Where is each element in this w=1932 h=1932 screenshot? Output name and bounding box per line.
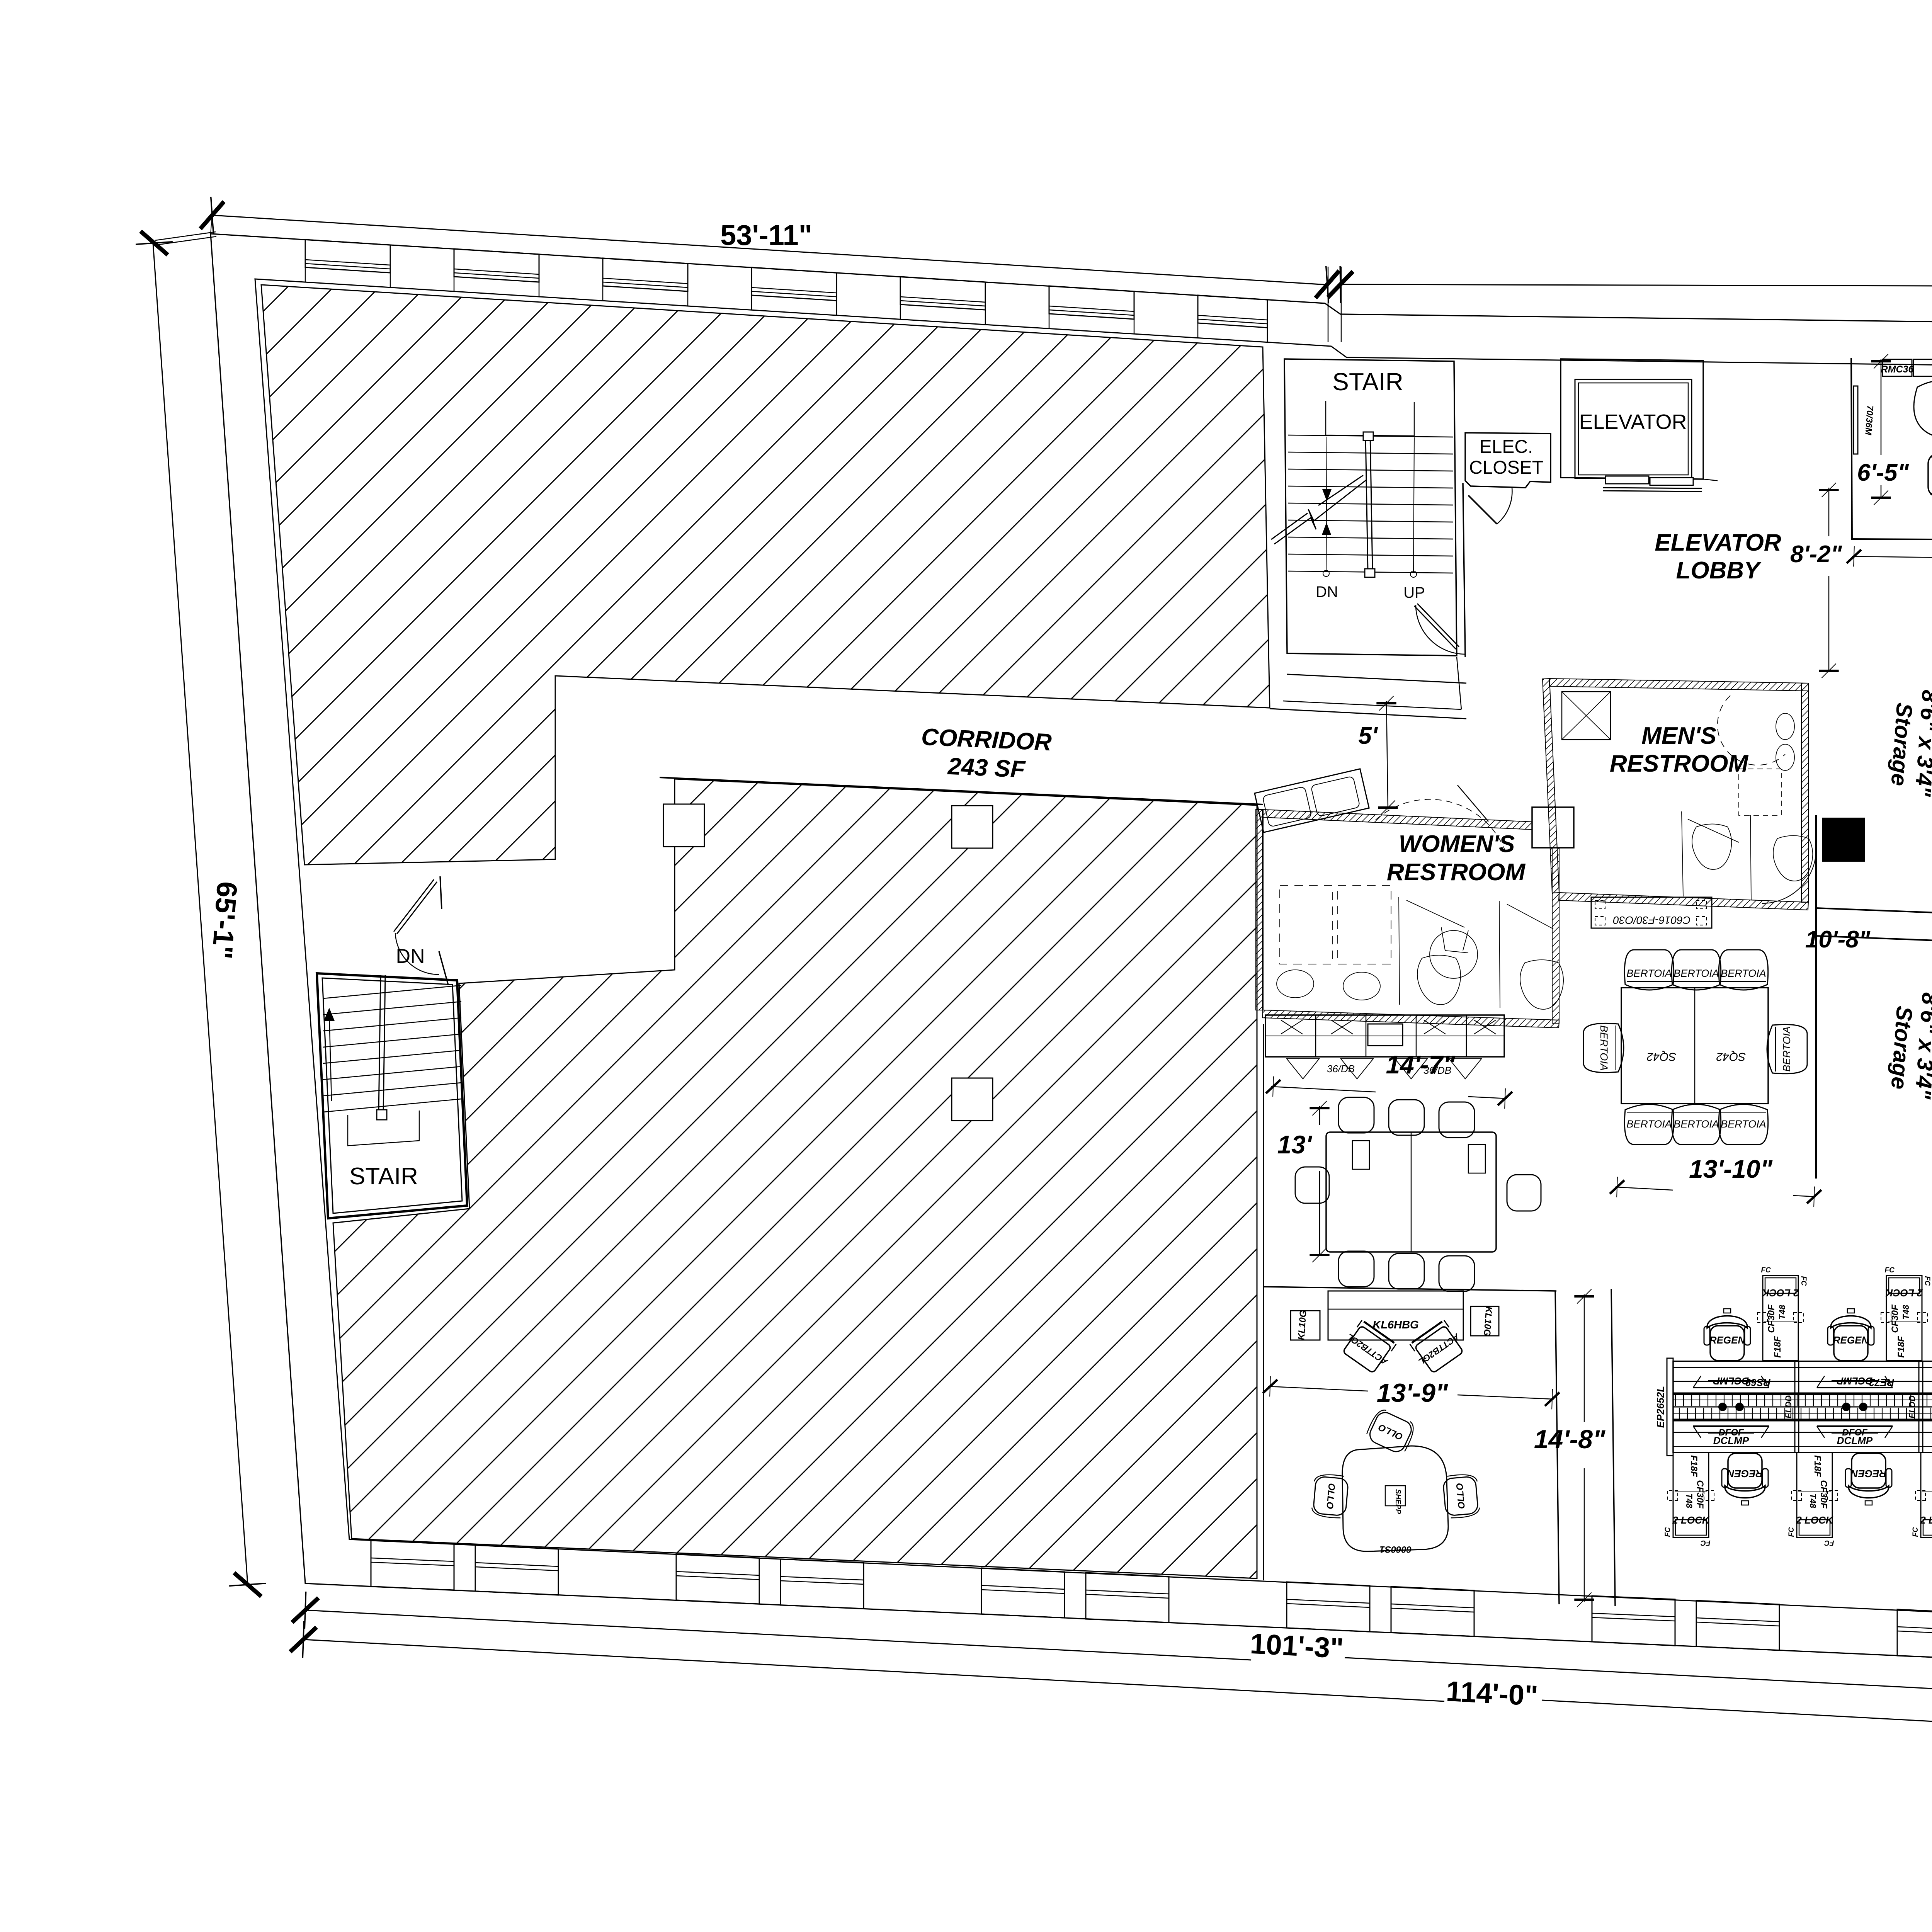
svg-text:RMC36: RMC36	[1881, 364, 1914, 375]
svg-text:EP2652L: EP2652L	[1655, 1386, 1666, 1428]
svg-text:RESTROOM: RESTROOM	[1387, 859, 1526, 886]
svg-text:14'-8": 14'-8"	[1534, 1425, 1605, 1454]
svg-text:F18F: F18F	[1689, 1455, 1699, 1477]
svg-text:SHEPP: SHEPP	[1394, 1489, 1402, 1514]
svg-text:BERTOIA: BERTOIA	[1626, 1118, 1672, 1130]
svg-text:BERTOIA: BERTOIA	[1721, 1118, 1766, 1130]
svg-text:ELEC.: ELEC.	[1480, 437, 1533, 457]
svg-text:F18F: F18F	[1772, 1336, 1783, 1358]
svg-text:FC: FC	[1912, 1527, 1920, 1537]
svg-text:FC: FC	[1799, 1276, 1808, 1286]
svg-text:MEN'S: MEN'S	[1641, 723, 1716, 749]
svg-text:ELEVATOR: ELEVATOR	[1579, 410, 1687, 434]
svg-text:REGEN: REGEN	[1727, 1468, 1763, 1480]
svg-text:DFOF: DFOF	[1842, 1427, 1868, 1438]
svg-text:CORRIDOR: CORRIDOR	[921, 724, 1052, 756]
svg-text:T48: T48	[1777, 1304, 1787, 1320]
svg-text:36/DB: 36/DB	[1327, 1063, 1355, 1075]
svg-text:FC: FC	[1761, 1266, 1771, 1274]
svg-text:T48: T48	[1901, 1304, 1911, 1320]
svg-text:CF30F: CF30F	[1818, 1480, 1829, 1509]
svg-text:DN: DN	[1316, 583, 1338, 600]
svg-text:KL6HBG: KL6HBG	[1372, 1319, 1418, 1331]
svg-text:10'-8": 10'-8"	[1805, 926, 1871, 953]
svg-text:STAIR: STAIR	[349, 1163, 418, 1190]
svg-text:BERTOIA: BERTOIA	[1673, 968, 1719, 979]
svg-text:F18F: F18F	[1812, 1455, 1823, 1477]
svg-text:FC: FC	[1787, 1527, 1796, 1537]
svg-text:ELDD: ELDD	[1784, 1395, 1793, 1418]
svg-text:CLOSET: CLOSET	[1469, 457, 1543, 478]
svg-text:FC: FC	[1701, 1539, 1711, 1547]
svg-text:RESTROOM: RESTROOM	[1610, 750, 1749, 777]
svg-text:2 LOCK: 2 LOCK	[1761, 1287, 1799, 1299]
svg-text:101'-3": 101'-3"	[1249, 1628, 1344, 1665]
svg-text:53'-11": 53'-11"	[720, 219, 812, 251]
svg-text:CF30F: CF30F	[1890, 1304, 1900, 1333]
svg-text:C6016-F30/O30: C6016-F30/O30	[1613, 914, 1690, 926]
svg-text:5': 5'	[1358, 723, 1378, 749]
svg-text:14'-7": 14'-7"	[1386, 1050, 1455, 1079]
svg-text:BERTOIA: BERTOIA	[1626, 968, 1672, 979]
svg-text:2 LOCK: 2 LOCK	[1885, 1287, 1923, 1299]
svg-text:FC: FC	[1923, 1276, 1931, 1286]
svg-text:SQ42: SQ42	[1646, 1050, 1676, 1063]
svg-text:SQ42: SQ42	[1716, 1050, 1746, 1063]
svg-text:13'-9": 13'-9"	[1377, 1378, 1448, 1408]
svg-text:DFOF: DFOF	[1718, 1427, 1744, 1438]
svg-text:13'-10": 13'-10"	[1689, 1155, 1772, 1183]
svg-text:6060S1: 6060S1	[1380, 1544, 1412, 1554]
svg-text:WOMEN'S: WOMEN'S	[1399, 831, 1515, 857]
svg-text:BERTOIA: BERTOIA	[1721, 968, 1766, 979]
svg-text:243 SF: 243 SF	[947, 753, 1027, 783]
svg-text:2 LOCK: 2 LOCK	[1920, 1514, 1932, 1526]
svg-text:13': 13'	[1277, 1130, 1312, 1159]
svg-text:2 LOCK: 2 LOCK	[1796, 1514, 1834, 1526]
svg-text:8'-2": 8'-2"	[1790, 541, 1842, 568]
svg-text:BERTOIA: BERTOIA	[1781, 1026, 1793, 1072]
svg-text:REGEN: REGEN	[1850, 1468, 1887, 1480]
svg-text:KL10G: KL10G	[1296, 1310, 1308, 1340]
svg-text:ELEVATOR: ELEVATOR	[1655, 529, 1781, 556]
svg-text:REGEN: REGEN	[1833, 1334, 1869, 1346]
svg-text:FC: FC	[1664, 1527, 1672, 1537]
svg-text:REGEN: REGEN	[1709, 1334, 1746, 1346]
svg-text:6'-5": 6'-5"	[1857, 459, 1909, 486]
svg-text:LOBBY: LOBBY	[1676, 557, 1762, 584]
svg-text:KL10G: KL10G	[1481, 1306, 1494, 1337]
svg-text:F18F: F18F	[1896, 1336, 1906, 1358]
svg-text:65'-1": 65'-1"	[206, 881, 243, 960]
svg-text:CF30F: CF30F	[1695, 1480, 1705, 1509]
svg-text:STAIR: STAIR	[1332, 368, 1403, 396]
svg-text:FC: FC	[1884, 1266, 1895, 1274]
svg-text:114'-0": 114'-0"	[1445, 1675, 1539, 1712]
svg-text:70/36M: 70/36M	[1863, 405, 1875, 435]
svg-text:UP: UP	[1403, 584, 1425, 601]
svg-text:T48: T48	[1684, 1493, 1694, 1509]
svg-text:BERTOIA: BERTOIA	[1673, 1118, 1719, 1130]
svg-text:BERTOIA: BERTOIA	[1598, 1025, 1610, 1071]
svg-text:CF30F: CF30F	[1766, 1304, 1777, 1333]
svg-text:T48: T48	[1808, 1493, 1818, 1509]
svg-text:2 LOCK: 2 LOCK	[1672, 1514, 1710, 1526]
svg-text:FC: FC	[1824, 1539, 1834, 1547]
svg-text:ELDD: ELDD	[1907, 1395, 1917, 1418]
